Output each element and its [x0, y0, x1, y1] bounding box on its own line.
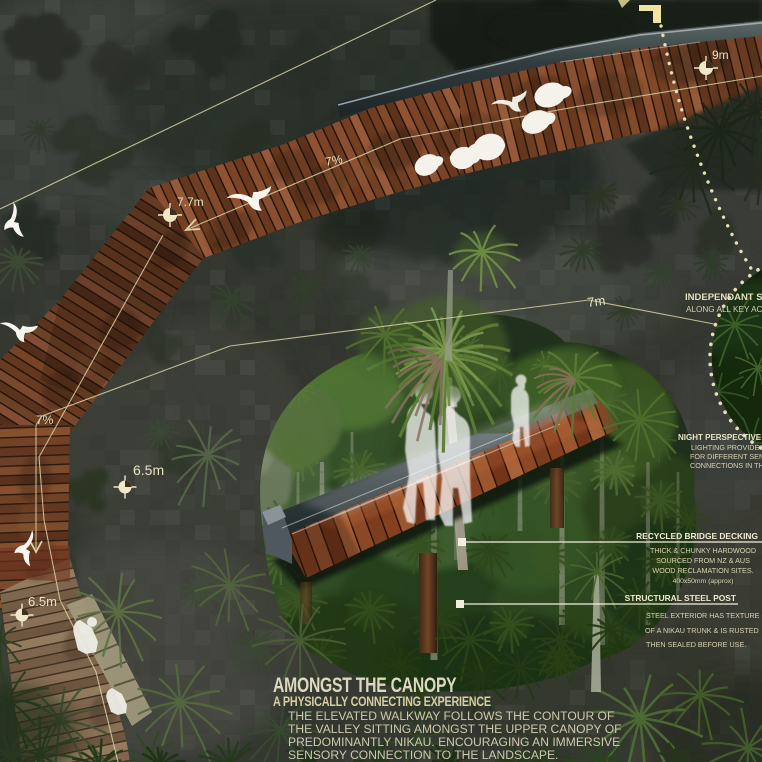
- svg-text:SOURCED FROM NZ & AUS: SOURCED FROM NZ & AUS: [656, 556, 750, 565]
- svg-text:400x50mm (approx): 400x50mm (approx): [673, 578, 734, 585]
- svg-text:7.7m: 7.7m: [177, 195, 204, 209]
- svg-text:9m: 9m: [712, 48, 729, 62]
- svg-text:WOOD RECLAMATION SITES.: WOOD RECLAMATION SITES.: [652, 566, 753, 575]
- svg-text:THE ELEVATED WALKWAY FOLLOWS T: THE ELEVATED WALKWAY FOLLOWS THE CONTOUR…: [288, 709, 614, 723]
- svg-text:THE VALLEY SITTING AMONGST THE: THE VALLEY SITTING AMONGST THE UPPER CAN…: [288, 722, 622, 736]
- svg-text:INDEPENDANT SEATING: INDEPENDANT SEATING: [685, 292, 762, 303]
- svg-text:STEEL EXTERIOR HAS TEXTURE: STEEL EXTERIOR HAS TEXTURE: [646, 611, 760, 620]
- svg-text:STRUCTURAL STEEL POST: STRUCTURAL STEEL POST: [625, 593, 737, 603]
- svg-text:OF A NIKAU TRUNK & IS RUSTED: OF A NIKAU TRUNK & IS RUSTED: [645, 626, 759, 635]
- svg-text:6.5m: 6.5m: [28, 594, 57, 609]
- svg-text:6.5m: 6.5m: [133, 462, 164, 478]
- svg-text:PREDOMINANTLY NIKAU. ENCOURAGI: PREDOMINANTLY NIKAU. ENCOURAGING AN IMME…: [288, 735, 620, 749]
- svg-text:A PHYSICALLY CONNECTING EXPERI: A PHYSICALLY CONNECTING EXPERIENCE: [273, 694, 491, 710]
- svg-text:THEN SEALED BEFORE USE.: THEN SEALED BEFORE USE.: [646, 640, 746, 649]
- svg-text:ALONG ALL KEY ACCESS: ALONG ALL KEY ACCESS: [686, 305, 762, 314]
- svg-text:7m: 7m: [586, 293, 606, 310]
- svg-text:RECYCLED BRIDGE DECKING: RECYCLED BRIDGE DECKING: [636, 531, 758, 541]
- svg-text:SENSORY CONNECTION TO THE LAND: SENSORY CONNECTION TO THE LANDSCAPE.: [288, 748, 558, 762]
- svg-text:7%: 7%: [36, 413, 54, 427]
- svg-text:THICK & CHUNKY HARDWOOD: THICK & CHUNKY HARDWOOD: [650, 546, 756, 555]
- svg-text:NIGHT PERSPECTIVE: NIGHT PERSPECTIVE: [678, 433, 762, 442]
- svg-text:CONNECTIONS IN THE DARK: CONNECTIONS IN THE DARK: [690, 461, 762, 470]
- svg-text:FOR DIFFERENT SENSORY: FOR DIFFERENT SENSORY: [690, 452, 762, 461]
- svg-text:LIGHTING PROVIDES OPPORTUNITY: LIGHTING PROVIDES OPPORTUNITY: [691, 443, 762, 452]
